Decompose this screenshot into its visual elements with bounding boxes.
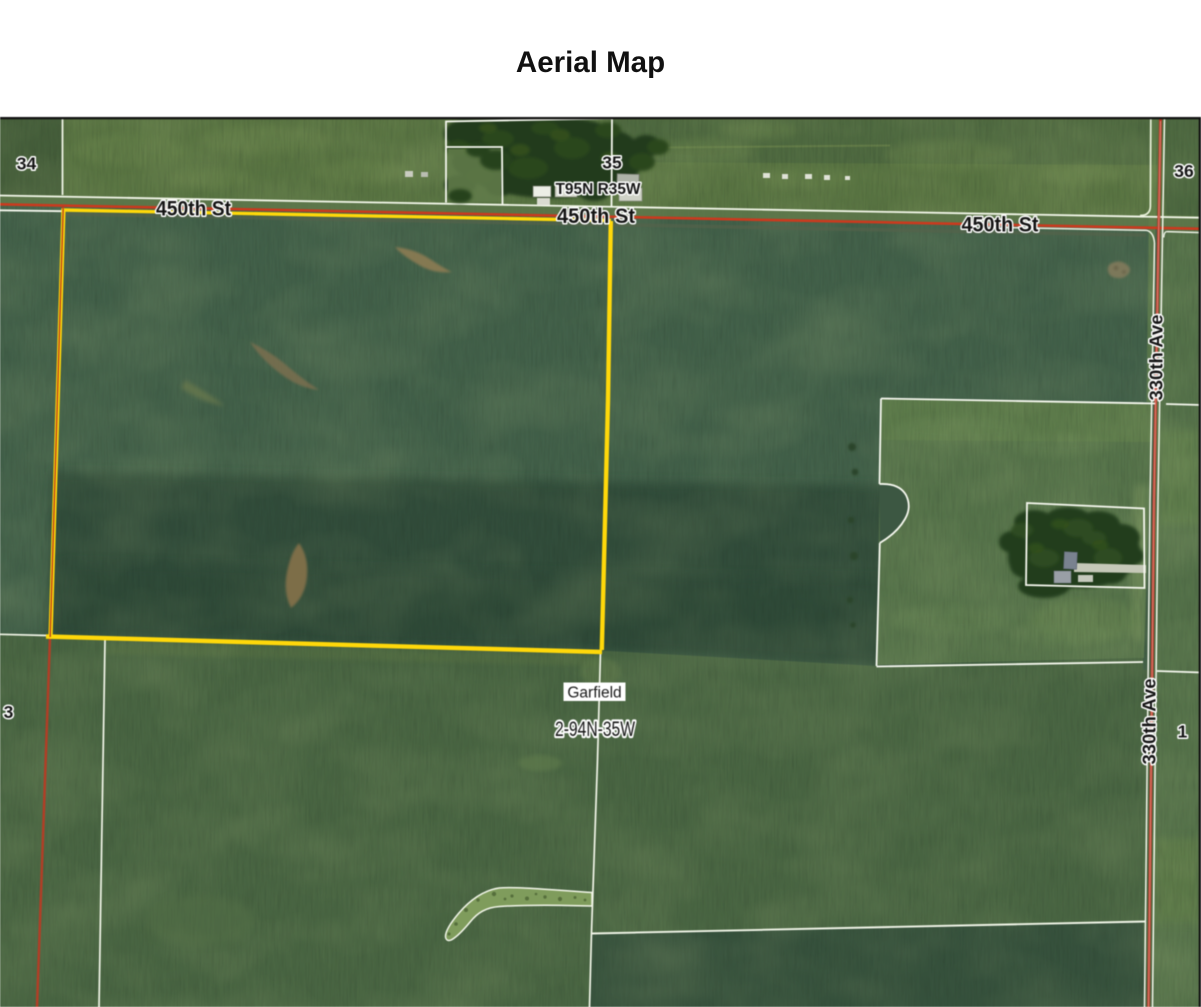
svg-text:Garfield: Garfield: [567, 685, 621, 702]
svg-text:T95N R35W: T95N R35W: [556, 181, 642, 198]
svg-text:34: 34: [17, 154, 37, 174]
svg-text:450th St: 450th St: [962, 214, 1039, 237]
svg-text:2-94N-35W: 2-94N-35W: [555, 718, 635, 741]
svg-text:36: 36: [1174, 161, 1194, 181]
svg-text:450th St: 450th St: [557, 204, 635, 228]
svg-text:330th Ave: 330th Ave: [1145, 314, 1166, 400]
svg-text:330th Ave: 330th Ave: [1138, 678, 1159, 764]
svg-text:1: 1: [1178, 722, 1188, 742]
svg-text:3: 3: [4, 702, 14, 722]
svg-text:450th St: 450th St: [156, 198, 231, 221]
svg-text:35: 35: [602, 153, 622, 173]
